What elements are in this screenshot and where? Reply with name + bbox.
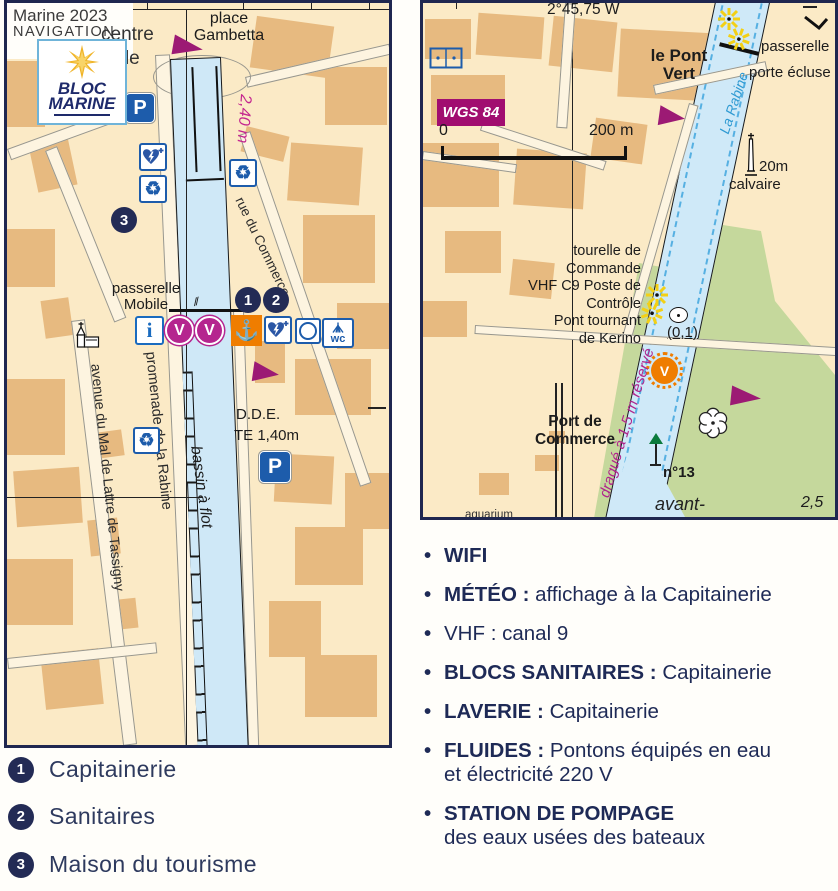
map-marker-1: 1 — [235, 287, 261, 313]
visitor-berth-icon: V — [165, 316, 194, 345]
beacon-topmark — [649, 433, 663, 444]
service-detail: canal 9 — [502, 622, 568, 645]
legend-item: 2 Sanitaires — [8, 803, 155, 830]
dde-label: D.D.E. — [236, 407, 280, 423]
control-line3: VHF C9 Poste de Contrôle — [528, 278, 641, 312]
pier-line — [191, 67, 197, 172]
page: ∕∕ Marine 2023 NAVIGATION centre ville B… — [0, 0, 838, 891]
edition-series: NAVIGATION — [13, 25, 115, 40]
passerelle-label: passerelle — [761, 39, 829, 55]
legend-item: 1 Capitainerie — [8, 756, 177, 783]
building-block — [295, 527, 363, 585]
railway-line — [561, 383, 563, 517]
longitude-label: 2°45,75 W — [547, 2, 620, 18]
buoy-v-label: V — [651, 363, 678, 379]
graticule-tick — [368, 407, 386, 409]
calvaire-height: 20m — [759, 159, 788, 175]
service-label: LAVERIE : — [444, 700, 544, 723]
legend-label: Sanitaires — [49, 803, 155, 830]
port-de-commerce-label: Port de Commerce — [531, 413, 619, 449]
legend-label: Capitainerie — [49, 756, 177, 783]
service-item-wifi: WIFI — [424, 544, 838, 568]
port-line2: Commerce — [535, 431, 615, 448]
bloc-marine-logo: BLOC MARINE — [37, 39, 127, 125]
graticule-tick — [311, 3, 312, 9]
service-label: WIFI — [444, 544, 487, 567]
graticule-tick — [803, 6, 817, 8]
laundry-icon — [295, 318, 321, 344]
building-block — [269, 601, 321, 657]
service-detail: Capitainerie — [550, 700, 659, 723]
legend-marker-2: 2 — [8, 804, 34, 830]
beacon-base-tick — [650, 464, 661, 466]
control-line5: de Kerino — [579, 331, 641, 347]
depth-label: 2,40 m — [233, 94, 253, 144]
control-line2: Commande — [566, 261, 641, 277]
passerelle-line2: Mobile — [124, 296, 168, 313]
pont-vert-label: le Pont Vert — [635, 47, 723, 83]
calvaire-label: calvaire — [729, 177, 781, 193]
star-icon — [63, 43, 101, 81]
building-block — [7, 229, 55, 287]
legend-item: 3 Maison du tourisme — [8, 851, 257, 878]
aquarium-label: aquarium — [465, 509, 513, 520]
service-label: FLUIDES : — [444, 739, 544, 762]
service-item-station-pompage: STATION DE POMPAGE des eaux usées des ba… — [424, 802, 838, 850]
logo-name-bottom: MARINE — [39, 96, 125, 111]
parking-icon: P — [125, 93, 155, 123]
scale-zero: 0 — [439, 123, 448, 140]
building-block — [305, 655, 377, 717]
service-detail-line2: des eaux usées des bateaux — [444, 826, 838, 850]
drying-height-label: (0,1) — [667, 325, 698, 341]
graticule-line — [186, 9, 187, 745]
services-list: WIFI MÉTÉO : affichage à la Capitainerie… — [424, 544, 838, 865]
building-block — [476, 13, 545, 60]
building-block — [549, 16, 618, 72]
port-flag-icon — [171, 35, 204, 60]
place-line2: Gambetta — [194, 27, 264, 44]
scale-bar — [441, 146, 627, 160]
port-flag-icon — [730, 385, 762, 408]
info-icon: i — [135, 316, 164, 345]
church-icon — [73, 321, 101, 356]
pier-line — [215, 66, 221, 171]
service-label: MÉTÉO : — [444, 583, 529, 606]
left-map: ∕∕ Marine 2023 NAVIGATION centre ville B… — [4, 0, 392, 748]
legend-label: Maison du tourisme — [49, 851, 257, 878]
pier-line — [186, 178, 224, 181]
map-marker-2: 2 — [263, 287, 289, 313]
service-detail: Pontons équipés en eau — [550, 739, 771, 762]
service-label: VHF : — [444, 622, 496, 645]
service-item-vhf: VHF : canal 9 — [424, 622, 838, 646]
port-flag-icon — [252, 361, 281, 384]
beacon-number: n°13 — [663, 465, 695, 481]
graticule-line — [127, 9, 389, 10]
building-block — [7, 379, 65, 455]
building-block — [423, 301, 467, 337]
recycling-icon: ♻ — [133, 427, 160, 454]
depth-25-label: 2,5 — [801, 495, 823, 512]
laundry-drum — [299, 322, 317, 340]
recycling-icon: ♻ — [229, 159, 257, 187]
roundabout-dot — [677, 314, 680, 317]
service-label: BLOCS SANITAIRES : — [444, 661, 657, 684]
control-line4: Pont tournant — [554, 313, 641, 329]
porte-ecluse-label: porte écluse — [749, 65, 831, 81]
building-block — [287, 143, 363, 206]
service-item-laverie: LAVERIE : Capitainerie — [424, 700, 838, 724]
port-flag-icon — [658, 105, 687, 128]
place-line1: place — [210, 10, 248, 27]
te-depth-label: TE 1,40m — [234, 428, 299, 444]
anchorage-icon: ⚓ — [231, 315, 262, 346]
right-map: 2°45,75 W WGS 84 0 200 m le Pont Vert pa… — [420, 0, 838, 520]
railway-line — [555, 383, 557, 517]
defibrillator-icon — [264, 316, 292, 344]
building-block — [479, 473, 509, 495]
edition-title: Marine 2023 — [13, 7, 108, 25]
map-marker-3: 3 — [111, 207, 137, 233]
parking-icon: P — [259, 451, 291, 483]
graticule-tick — [243, 3, 244, 9]
graticule-tick — [369, 3, 370, 9]
service-item-meteo: MÉTÉO : affichage à la Capitainerie — [424, 583, 838, 607]
scale-end: 200 m — [589, 123, 633, 140]
flower-symbol — [695, 405, 731, 446]
shower-wc-icon: wc — [322, 318, 354, 348]
service-detail-line2: et électricité 220 V — [444, 763, 838, 787]
service-detail: affichage à la Capitainerie — [535, 583, 772, 606]
flow-arrow-icon — [803, 15, 829, 40]
graticule-tick — [456, 3, 457, 9]
legend-marker-3: 3 — [8, 852, 34, 878]
control-line1: tourelle de — [573, 243, 641, 259]
building-block — [325, 67, 387, 125]
building-block — [40, 297, 73, 339]
wgs84-label: WGS 84 — [443, 104, 500, 121]
recycling-icon: ♻ — [139, 175, 167, 203]
service-item-blocs-sanitaires: BLOCS SANITAIRES : Capitainerie — [424, 661, 838, 685]
service-label: STATION DE POMPAGE — [444, 802, 674, 825]
port-line1: Port de — [548, 413, 601, 430]
passerelle-mobile-label: passerelle Mobile — [103, 281, 189, 313]
stadium-icon — [429, 47, 463, 74]
visitor-buoy-icon: V — [651, 357, 678, 384]
building-block — [303, 215, 375, 283]
passerelle-line1: passerelle — [112, 280, 180, 297]
control-post-label: tourelle de Commande VHF C9 Poste de Con… — [475, 243, 641, 348]
beacon-staff — [655, 443, 657, 465]
roundabout-symbol — [669, 307, 688, 323]
logo-tagline-rule — [54, 114, 110, 116]
service-item-fluides: FLUIDES : Pontons équipés en eau et élec… — [424, 739, 838, 787]
defibrillator-icon — [139, 143, 167, 171]
pont-vert-line2: Vert — [663, 64, 695, 83]
wc-label: wc — [331, 334, 346, 344]
legend-marker-1: 1 — [8, 757, 34, 783]
avant-port-label: avant- — [655, 495, 705, 514]
visitor-berth-icon: V — [195, 316, 224, 345]
graticule-tick — [147, 3, 148, 9]
service-detail: Capitainerie — [662, 661, 771, 684]
building-block — [7, 559, 73, 625]
pont-vert-line1: le Pont — [651, 46, 708, 65]
